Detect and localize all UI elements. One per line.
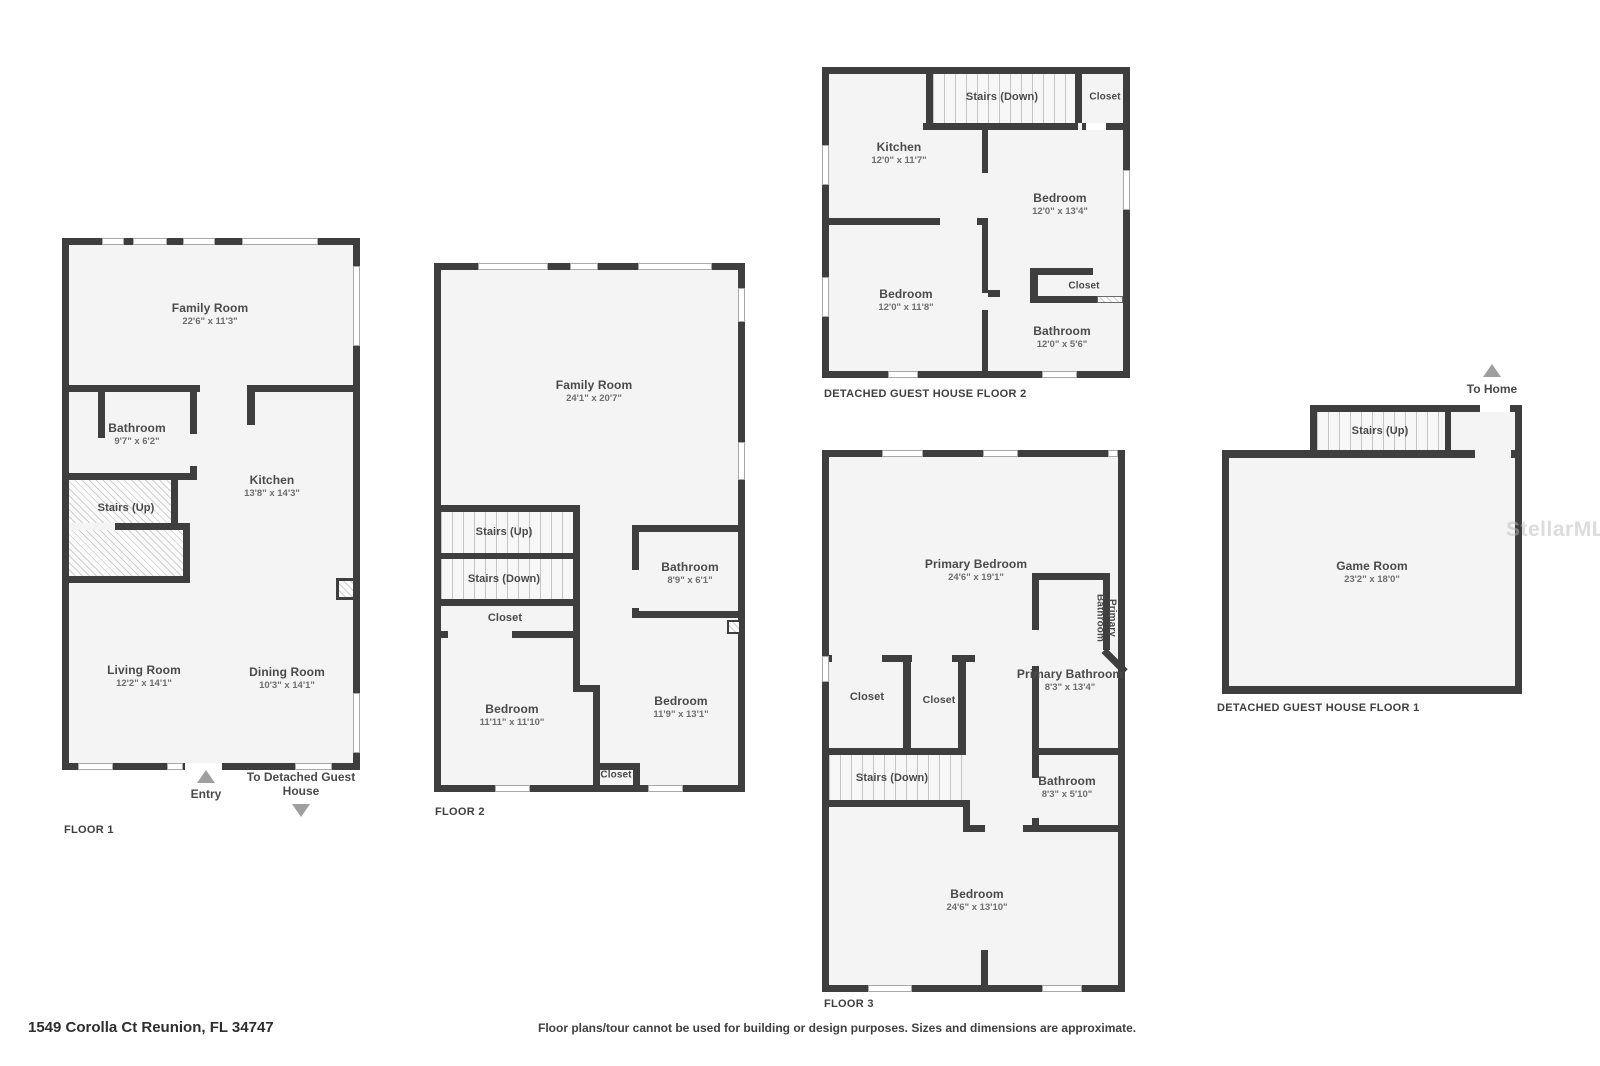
hatched-area bbox=[336, 578, 356, 600]
wall-segment bbox=[62, 238, 69, 770]
room-dims: 9'7" x 6'2" bbox=[108, 436, 165, 447]
room-label-kitchen: Kitchen 13'8" x 14'3" bbox=[244, 473, 300, 499]
wall-segment bbox=[926, 67, 933, 130]
floorplan-floor-1: Family Room 22'6" x 11'3" Bathroom 9'7" … bbox=[62, 238, 360, 770]
wall-segment bbox=[115, 523, 190, 530]
room-label-stairs-up: Stairs (Up) bbox=[476, 526, 533, 538]
wall-segment bbox=[923, 123, 1078, 130]
room-label-bathroom: Bathroom 12'0" x 5'6" bbox=[1033, 324, 1090, 350]
wall-segment bbox=[822, 67, 1130, 74]
wall-segment bbox=[632, 525, 639, 570]
floor-2-title: FLOOR 2 bbox=[435, 806, 485, 818]
wall-segment bbox=[98, 392, 105, 438]
window-marker bbox=[353, 693, 360, 753]
wall-segment bbox=[62, 576, 190, 583]
hatched-area bbox=[1097, 296, 1123, 303]
room-dims: 8'3" x 5'10" bbox=[1038, 789, 1095, 800]
wall-segment bbox=[827, 748, 958, 755]
wall-segment bbox=[1222, 686, 1522, 694]
wall-segment bbox=[981, 950, 988, 985]
room-dims: 12'0" x 13'4" bbox=[1032, 206, 1088, 217]
wall-segment bbox=[982, 310, 988, 371]
hatched-area bbox=[727, 620, 741, 634]
room-name: Stairs (Down) bbox=[468, 573, 540, 585]
room-label-stairs-down: Stairs (Down) bbox=[966, 91, 1038, 103]
room-name: Bathroom bbox=[1038, 774, 1095, 788]
room-dims: 13'8" x 14'3" bbox=[244, 488, 300, 499]
hatched-area bbox=[69, 530, 183, 576]
room-dims: 22'6" x 11'3" bbox=[172, 316, 248, 327]
room-label-closet-mid: Closet bbox=[1068, 281, 1099, 292]
window-marker bbox=[102, 238, 124, 245]
room-dims: 11'9" x 13'1" bbox=[653, 709, 708, 720]
window-marker bbox=[1123, 170, 1130, 210]
window-marker bbox=[822, 277, 829, 317]
window-marker bbox=[738, 442, 745, 480]
room-name: Family Room bbox=[556, 378, 632, 392]
wall-segment bbox=[434, 505, 580, 512]
entry-arrow-icon bbox=[197, 770, 215, 783]
wall-segment bbox=[1123, 67, 1130, 378]
window-marker bbox=[495, 785, 530, 792]
room-label-closet: Closet bbox=[488, 612, 522, 624]
window-marker bbox=[638, 263, 712, 270]
room-dims: 10'3" x 14'1" bbox=[249, 680, 325, 691]
wall-segment bbox=[62, 473, 197, 480]
floorplan-canvas: Family Room 22'6" x 11'3" Bathroom 9'7" … bbox=[0, 0, 1600, 1066]
room-name: Closet bbox=[600, 770, 631, 781]
room-name: Bathroom bbox=[1033, 324, 1090, 338]
window-marker bbox=[242, 238, 318, 245]
wall-segment bbox=[434, 631, 448, 638]
window-marker bbox=[167, 763, 183, 770]
room-name: Living Room bbox=[107, 663, 181, 677]
disclaimer-text: Floor plans/tour cannot be used for buil… bbox=[538, 1021, 1136, 1035]
room-dims: 12'2" x 14'1" bbox=[107, 678, 181, 689]
window-marker bbox=[822, 656, 829, 682]
door-opening bbox=[1480, 405, 1510, 412]
room-name: Primary Bathroom bbox=[1017, 667, 1123, 681]
wall-segment bbox=[1032, 573, 1110, 580]
wall-segment bbox=[1515, 405, 1522, 694]
door-opening bbox=[185, 763, 222, 770]
wall-segment bbox=[963, 805, 970, 832]
room-name: Bedroom bbox=[946, 887, 1007, 901]
room-label-closet-lower: Closet bbox=[600, 770, 631, 781]
to-guest-house-arrow-icon bbox=[292, 804, 310, 817]
room-name: Bedroom bbox=[878, 287, 933, 301]
room-name: Dining Room bbox=[249, 665, 325, 679]
room-name: Bedroom bbox=[480, 702, 545, 716]
room-dims: 8'9" x 6'1" bbox=[661, 575, 718, 586]
wall-segment bbox=[822, 371, 1130, 378]
wall-segment bbox=[434, 785, 745, 792]
window-marker bbox=[983, 450, 1018, 457]
room-name: Stairs (Down) bbox=[966, 91, 1038, 103]
window-marker bbox=[78, 763, 113, 770]
guest-house-floor-2-title: DETACHED GUEST HOUSE FLOOR 2 bbox=[824, 388, 1027, 400]
wall-segment bbox=[593, 692, 600, 785]
room-label-bedroom: Bedroom 24'6" x 13'10" bbox=[946, 887, 1007, 913]
wall-segment bbox=[247, 385, 255, 425]
room-label-bedroom-right: Bedroom 11'9" x 13'1" bbox=[653, 694, 708, 720]
room-dims: 24'6" x 19'1" bbox=[925, 572, 1027, 583]
room-dims: 23'2" x 18'0" bbox=[1336, 574, 1408, 585]
room-name: Bathroom bbox=[108, 421, 165, 435]
wall-segment bbox=[1038, 268, 1093, 275]
window-marker bbox=[822, 145, 829, 185]
wall-segment bbox=[1032, 748, 1125, 755]
room-label-bathroom: Bathroom 8'9" x 6'1" bbox=[661, 560, 718, 586]
room-label-dining-room: Dining Room 10'3" x 14'1" bbox=[249, 665, 325, 691]
wall-segment bbox=[1445, 412, 1451, 450]
room-label-bathroom: Bathroom 9'7" x 6'2" bbox=[108, 421, 165, 447]
wall-segment bbox=[62, 385, 200, 392]
room-name: Stairs (Up) bbox=[98, 502, 155, 514]
wall-segment bbox=[512, 631, 580, 638]
wall-segment bbox=[1118, 450, 1125, 992]
room-label-stairs-down: Stairs (Down) bbox=[468, 573, 540, 585]
to-guest-house-label: To Detached Guest House bbox=[246, 770, 356, 799]
room-name: Primary Bathroom bbox=[1095, 590, 1118, 646]
room-dims: 24'6" x 13'10" bbox=[946, 902, 1007, 913]
room-label-closet-top: Closet bbox=[1089, 92, 1120, 103]
room-name: Kitchen bbox=[244, 473, 300, 487]
wall-segment bbox=[982, 218, 988, 293]
window-marker bbox=[1108, 450, 1118, 457]
wall-segment bbox=[822, 450, 1125, 457]
room-name: Stairs (Up) bbox=[1352, 425, 1409, 437]
room-label-family-room: Family Room 24'1" x 20'7" bbox=[556, 378, 632, 404]
wall-segment bbox=[1032, 573, 1039, 630]
floorplan-floor-2: Family Room 24'1" x 20'7" Stairs (Up) St… bbox=[434, 263, 745, 792]
room-label-primary-bathroom-wc: Primary Bathroom bbox=[1095, 590, 1118, 646]
window-marker bbox=[738, 288, 745, 322]
room-dims: 11'11" x 11'10" bbox=[480, 717, 545, 728]
window-marker bbox=[882, 450, 923, 457]
wall-segment bbox=[822, 450, 829, 992]
window-marker bbox=[888, 371, 918, 378]
window-marker bbox=[570, 263, 598, 270]
floor-3-title: FLOOR 3 bbox=[824, 998, 874, 1010]
window-marker bbox=[295, 763, 332, 770]
wall-segment bbox=[903, 655, 911, 755]
floorplan-guest-house-floor-1: Stairs (Up) Game Room 23'2" x 18'0" bbox=[1222, 405, 1522, 694]
room-dims: 12'0" x 11'7" bbox=[871, 155, 926, 166]
to-home-label: To Home bbox=[1467, 382, 1517, 396]
wall-segment bbox=[1075, 67, 1082, 123]
room-name: Closet bbox=[488, 612, 522, 624]
wall-segment bbox=[573, 638, 580, 692]
room-dims: 12'0" x 11'8" bbox=[878, 302, 933, 313]
room-name: Bathroom bbox=[661, 560, 718, 574]
room-label-family-room: Family Room 22'6" x 11'3" bbox=[172, 301, 248, 327]
room-name: Family Room bbox=[172, 301, 248, 315]
wall-segment bbox=[171, 480, 178, 528]
floor-1-title: FLOOR 1 bbox=[64, 824, 114, 836]
room-dims: 8'3" x 13'4" bbox=[1017, 682, 1123, 693]
stellar-mls-watermark: StellarMLS bbox=[1506, 518, 1600, 542]
wall-segment bbox=[573, 685, 600, 692]
room-label-bedroom-right: Bedroom 12'0" x 13'4" bbox=[1032, 191, 1088, 217]
room-label-bedroom-left: Bedroom 12'0" x 11'8" bbox=[878, 287, 933, 313]
window-marker bbox=[183, 238, 215, 245]
guest-house-floor-1-title: DETACHED GUEST HOUSE FLOOR 1 bbox=[1217, 702, 1420, 714]
window-marker bbox=[868, 985, 912, 992]
wall-segment bbox=[982, 123, 988, 173]
wall-segment bbox=[434, 599, 580, 606]
wall-segment bbox=[1310, 405, 1480, 412]
window-marker bbox=[353, 266, 360, 346]
room-name: Stairs (Up) bbox=[476, 526, 533, 538]
room-label-game-room: Game Room 23'2" x 18'0" bbox=[1336, 559, 1408, 585]
wall-segment bbox=[632, 611, 745, 618]
room-name: Closet bbox=[1068, 281, 1099, 292]
wall-segment bbox=[1222, 450, 1229, 694]
room-name: Closet bbox=[1089, 92, 1120, 103]
room-label-primary-bathroom: Primary Bathroom 8'3" x 13'4" bbox=[1017, 667, 1123, 693]
window-marker bbox=[648, 785, 683, 792]
room-dims: 12'0" x 5'6" bbox=[1033, 339, 1090, 350]
door-opening bbox=[1086, 123, 1106, 130]
to-home-arrow-icon bbox=[1483, 364, 1501, 377]
window-marker bbox=[478, 263, 548, 270]
room-name: Primary Bedroom bbox=[925, 557, 1027, 571]
window-marker bbox=[133, 238, 167, 245]
property-address: 1549 Corolla Ct Reunion, FL 34747 bbox=[28, 1019, 274, 1036]
room-label-primary-bedroom: Primary Bedroom 24'6" x 19'1" bbox=[925, 557, 1027, 583]
window-marker bbox=[1042, 985, 1082, 992]
window-marker bbox=[1042, 371, 1077, 378]
room-name: Bedroom bbox=[1032, 191, 1088, 205]
room-label-stairs-down: Stairs (Down) bbox=[856, 772, 928, 784]
wall-segment bbox=[977, 218, 988, 225]
room-label-closet-mid: Closet bbox=[923, 694, 956, 706]
wall-segment bbox=[829, 218, 940, 225]
room-name: Closet bbox=[923, 694, 956, 706]
room-label-living-room: Living Room 12'2" x 14'1" bbox=[107, 663, 181, 689]
room-label-bedroom-left: Bedroom 11'11" x 11'10" bbox=[480, 702, 545, 728]
room-dims: 24'1" x 20'7" bbox=[556, 393, 632, 404]
room-name: Game Room bbox=[1336, 559, 1408, 573]
room-label-stairs-up: Stairs (Up) bbox=[1352, 425, 1409, 437]
wall-segment bbox=[822, 800, 970, 807]
wall-segment bbox=[434, 263, 441, 792]
room-name: Bedroom bbox=[653, 694, 708, 708]
entry-label: Entry bbox=[191, 787, 222, 801]
room-label-closet-left: Closet bbox=[850, 691, 884, 703]
wall-segment bbox=[573, 505, 580, 638]
room-name: Kitchen bbox=[871, 140, 926, 154]
wall-segment bbox=[190, 392, 197, 434]
wall-segment bbox=[988, 290, 1000, 297]
room-label-bathroom: Bathroom 8'3" x 5'10" bbox=[1038, 774, 1095, 800]
wall-segment bbox=[1023, 825, 1125, 832]
wall-segment bbox=[247, 385, 360, 392]
room-label-stairs-up: Stairs (Up) bbox=[98, 502, 155, 514]
wall-segment bbox=[632, 525, 745, 532]
room-label-kitchen: Kitchen 12'0" x 11'7" bbox=[871, 140, 926, 166]
floorplan-floor-3: Primary Bedroom 24'6" x 19'1" Primary Ba… bbox=[822, 450, 1125, 992]
room-name: Closet bbox=[850, 691, 884, 703]
wall-segment bbox=[958, 655, 966, 755]
wall-segment bbox=[633, 763, 640, 785]
wall-segment bbox=[822, 67, 829, 378]
floorplan-guest-house-floor-2: Stairs (Down) Closet Kitchen 12'0" x 11'… bbox=[822, 67, 1130, 378]
room-name: Stairs (Down) bbox=[856, 772, 928, 784]
wall-segment bbox=[1222, 450, 1475, 458]
